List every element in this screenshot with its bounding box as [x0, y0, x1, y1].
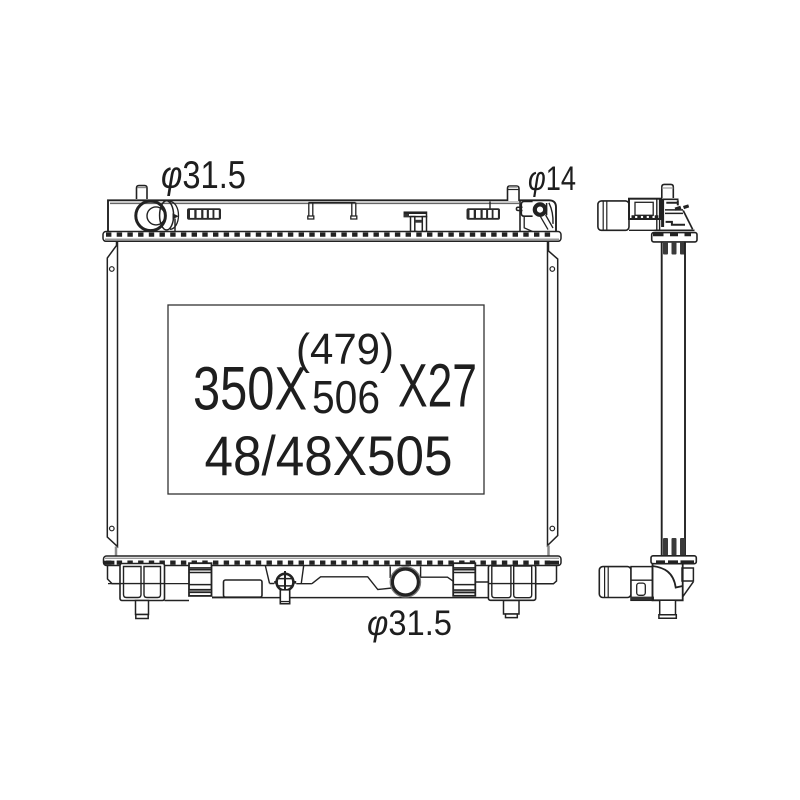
- svg-text:φ31.5: φ31.5: [367, 604, 452, 643]
- svg-text:506: 506: [312, 371, 380, 423]
- svg-text:(479): (479): [296, 325, 394, 374]
- svg-text:48/48X505: 48/48X505: [205, 424, 453, 487]
- svg-text:φ14: φ14: [528, 160, 576, 198]
- svg-text:φ31.5: φ31.5: [161, 154, 246, 197]
- svg-text:350X: 350X: [193, 355, 307, 423]
- svg-text:X27: X27: [398, 352, 477, 420]
